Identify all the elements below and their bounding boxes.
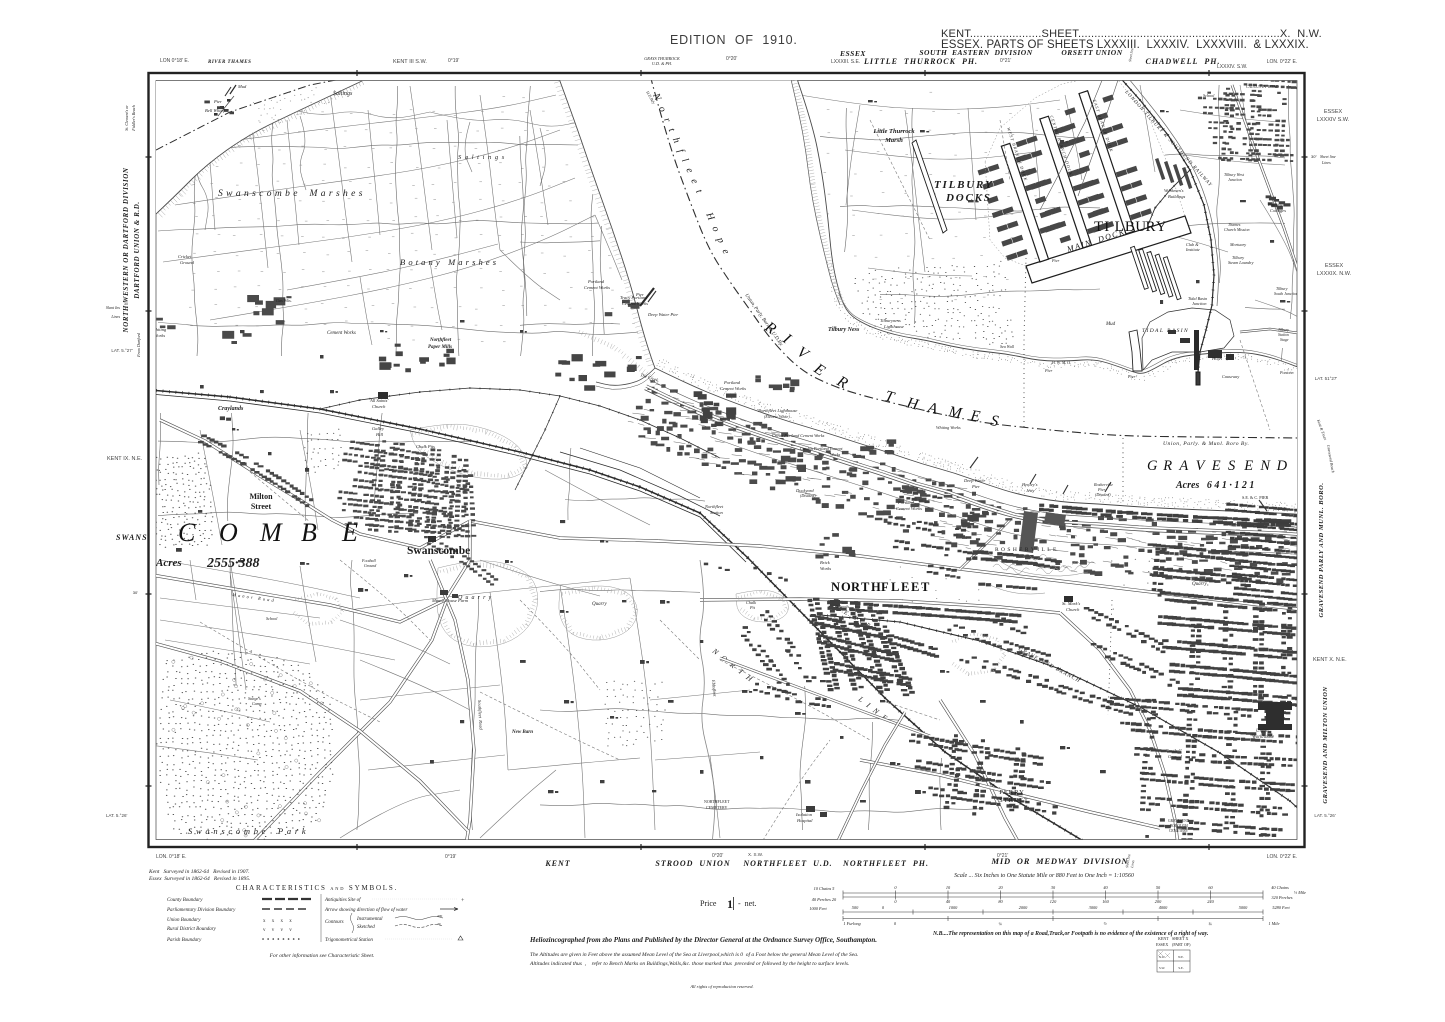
svg-text:4000: 4000 [1159,905,1168,910]
svg-text:Camp: Camp [252,701,262,706]
svg-text:Slant Ins: Slant Ins [106,305,121,310]
svg-text:Pier: Pier [1127,374,1136,379]
svg-text:160: 160 [1102,899,1109,904]
svg-text:(Disused): (Disused) [800,493,816,498]
svg-text:B: B [301,518,317,547]
svg-text:X. S.W.: X. S.W. [748,852,763,857]
svg-text:St. Clement's or: St. Clement's or [124,105,129,131]
svg-text:Isolation: Isolation [795,812,813,817]
svg-text:Arrow showing direction of flo: Arrow showing direction of flow of water [324,908,407,913]
svg-text:Station: Station [1278,333,1289,337]
svg-text:Church: Church [372,404,386,409]
svg-text:Sea Wall: Sea Wall [1000,344,1015,349]
svg-text:Tilbury: Tilbury [1278,328,1289,332]
svg-text:Workhouse: Workhouse [1252,735,1275,740]
svg-text:ESSEX: ESSEX [839,49,866,58]
svg-text:N: N [1259,458,1271,474]
svg-text:From Dartford: From Dartford [136,332,141,358]
svg-text:Tilbury Ness: Tilbury Ness [828,327,860,333]
svg-text:Mud: Mud [237,84,247,89]
svg-text:School: School [266,616,278,621]
svg-text:KENT III S.W.: KENT III S.W. [393,59,427,65]
svg-text:240: 240 [1207,899,1214,904]
svg-text:1000: 1000 [949,905,958,910]
svg-text:Acres 6 4 1 · 1 2 1: Acres 6 4 1 · 1 2 1 [1175,480,1254,491]
svg-text:Pier: Pier [635,292,644,297]
svg-text:1 Mile: 1 Mile [1268,921,1279,926]
svg-text:Ground: Ground [364,563,377,568]
svg-text:Church Mission: Church Mission [1224,227,1250,232]
svg-text:Little Thurrock: Little Thurrock [872,128,915,135]
svg-text:30: 30 [124,302,128,306]
svg-text:SHEET X: SHEET X [1172,936,1188,941]
svg-text:LON. 0°22' E.: LON. 0°22' E. [1267,59,1297,65]
svg-text:0°20': 0°20' [712,853,723,859]
svg-text:TIDAL BASIN: TIDAL BASIN [1142,328,1189,334]
svg-text:South Junction: South Junction [1274,291,1298,296]
svg-text:Buildings: Buildings [1168,194,1185,199]
svg-text:LAT. 5.°26': LAT. 5.°26' [1314,813,1335,818]
svg-text:Northfleet Lighthouse: Northfleet Lighthouse [757,408,797,413]
svg-text:Parish Boundary: Parish Boundary [166,938,202,943]
svg-text:G: G [1147,458,1158,474]
svg-text:LXXXIV. S.W.: LXXXIV. S.W. [1217,64,1247,70]
svg-text:St. Mark's: St. Mark's [1062,601,1080,606]
svg-text:Lines: Lines [110,314,120,319]
svg-text:Quarry: Quarry [592,602,608,607]
svg-text:Workmen's: Workmen's [1164,188,1184,193]
svg-text:All Saints': All Saints' [369,398,389,403]
svg-text:DARTFORD UNION & R.D.: DARTFORD UNION & R.D. [133,201,141,300]
svg-text:Cement Works: Cement Works [622,301,648,306]
svg-text:Marsh: Marsh [884,137,903,144]
svg-text:Altitudes indicated thus ,: Altitudes indicated thus , refer to Benc… [529,960,849,967]
svg-text:E: E [341,518,358,547]
svg-text:Portland: Portland [897,500,915,505]
svg-text:County Boundary: County Boundary [167,898,203,903]
svg-text:CHADWELL PH.: CHADWELL PH. [1145,57,1220,66]
svg-text:Tracy Portland: Tracy Portland [620,295,648,300]
svg-text:Hospital: Hospital [796,818,813,823]
svg-text:Railway: Railway [1267,202,1283,207]
svg-text:R: R [851,580,861,594]
svg-text:NORTHFLEET: NORTHFLEET [704,799,730,804]
svg-text:R O S H E R V I L L E: R O S H E R V I L L E [995,547,1057,553]
svg-text:KENT: KENT [1158,936,1169,941]
svg-text:Brick: Brick [820,560,831,565]
svg-text:Crown Portland Cement Works: Crown Portland Cement Works [772,433,825,438]
svg-text:30'': 30'' [1311,154,1317,159]
svg-text:Northfleet: Northfleet [429,338,452,343]
svg-text:Pier: Pier [1044,368,1053,373]
svg-text:CHARACTERISTICS AND SYMBOLS.: CHARACTERISTICS AND SYMBOLS. [236,884,398,892]
svg-text:Bell Wharf: Bell Wharf [205,108,225,113]
svg-text:v v v v: v v v v [263,928,292,933]
svg-text:Ground: Ground [1168,754,1183,759]
svg-text:Cement Works: Cement Works [327,331,356,336]
svg-text:Mortuary: Mortuary [1229,242,1246,247]
svg-text:2000: 2000 [1019,905,1028,910]
svg-text:T: T [921,580,930,594]
svg-text:O: O [841,580,851,594]
svg-text:SWANS: SWANS [116,533,148,542]
svg-text:NORTHFLEET PH.: NORTHFLEET PH. [842,859,929,868]
svg-text:Jetty: Jetty [1026,488,1035,493]
svg-text:0°21': 0°21' [1000,58,1011,64]
svg-text:Scale ... Six Inches to One St: Scale ... Six Inches to One Statute Mile… [954,873,1134,879]
svg-text:Instrumental: Instrumental [356,917,383,922]
svg-text:Pontoon: Pontoon [1279,370,1294,375]
svg-text:Parliamentary Division Boundar: Parliamentary Division Boundary [166,908,236,913]
svg-text:Cottages: Cottages [1270,208,1286,213]
svg-text:Whiting Works: Whiting Works [936,425,961,430]
svg-text:Works: Works [830,452,841,457]
svg-text:Paper Mills: Paper Mills [428,345,452,350]
svg-text:R: R [1146,219,1156,235]
svg-text:H. W. M. O.: H. W. M. O. [1051,360,1071,365]
svg-text:5280 Feet: 5280 Feet [1272,905,1290,910]
svg-text:2555·388: 2555·388 [206,556,260,571]
svg-text:Contours: Contours [325,920,344,925]
svg-text:Sheet line: Sheet line [1320,154,1336,159]
svg-text:O: O [219,518,238,547]
svg-text:½ Mile: ½ Mile [1294,890,1306,895]
svg-text:GRAVESEND PARLY AND MUNL. BORO: GRAVESEND PARLY AND MUNL. BORO. [1318,483,1325,618]
svg-text:NORTHFLEET U.D.: NORTHFLEET U.D. [742,859,832,868]
svg-text:1: 1 [727,897,733,911]
svg-text:Steam Laundry: Steam Laundry [1228,260,1254,265]
svg-text:GRAVESEND AND MILTON UNION: GRAVESEND AND MILTON UNION [1322,686,1329,803]
svg-text:Milton: Milton [249,492,273,501]
svg-text:Rural District Boundary: Rural District Boundary [166,927,217,932]
svg-text:H: H [871,580,881,594]
svg-text:Price: Price [700,899,717,908]
svg-text:Causeway: Causeway [1222,374,1239,379]
svg-text:Henley's: Henley's [1021,482,1038,487]
svg-text:Chalk Pits: Chalk Pits [416,444,435,449]
svg-text:Union, Parly. & Munl. Boro By.: Union, Parly. & Munl. Boro By. [1163,441,1249,447]
svg-text:Stage: Stage [1280,338,1289,342]
svg-text:E: E [911,580,919,594]
svg-text:(PART OF): (PART OF) [1172,942,1191,947]
svg-text:GRAVESEND: GRAVESEND [1168,819,1190,823]
svg-text:400: 400 [437,914,443,918]
svg-text:M: M [259,518,283,547]
svg-text:S a l t i n g s: S a l t i n g s [458,154,505,161]
svg-text:40 Perches 20: 40 Perches 20 [812,897,837,902]
svg-text:Cement Works: Cement Works [720,386,746,391]
svg-text:Northfleet: Northfleet [704,504,724,509]
svg-text:CEMETERY: CEMETERY [706,805,727,810]
svg-text:Quarry: Quarry [1192,582,1208,587]
svg-text:Lines: Lines [1321,160,1331,165]
svg-text:C: C [178,518,196,547]
svg-text:5000: 5000 [1239,905,1248,910]
svg-text:120: 120 [1050,899,1057,904]
svg-text:Ground: Ground [180,260,195,265]
svg-text:MID OR MEDWAY DIVISION: MID OR MEDWAY DIVISION [991,856,1129,866]
svg-text:Saltings: Saltings [333,91,353,97]
svg-text:ORSETT UNION: ORSETT UNION [1061,48,1122,57]
svg-text:London Portland Cement: London Portland Cement [799,446,843,451]
svg-text:Acres: Acres [155,557,182,569]
svg-text:0°19': 0°19' [445,854,456,860]
svg-text:School: School [1203,93,1215,98]
svg-text:Hotel: Hotel [1211,356,1223,361]
svg-text:3000: 3000 [1089,905,1098,910]
svg-text:CEMETERY: CEMETERY [1169,829,1189,833]
svg-text:For other information see Char: For other information see Characteristic… [269,952,375,959]
svg-text:Y: Y [1156,219,1167,235]
svg-text:10 Chains 5: 10 Chains 5 [814,886,836,891]
svg-text:x x x x: x x x x [263,919,292,924]
svg-text:Essex Surveyed in 1862-64 R: Essex Surveyed in 1862-64 Revised in 189… [148,875,250,882]
svg-text:Antiquities Site of: Antiquities Site of [324,898,361,903]
svg-text:Cricket: Cricket [178,254,192,259]
svg-text:ESSEX: ESSEX [1324,109,1343,115]
svg-text:BOROUGH: BOROUGH [1170,824,1188,828]
svg-text:LON. 0°22' E.: LON. 0°22' E. [1267,854,1297,860]
svg-text:N.W.: N.W. [1159,955,1166,959]
svg-text:The Altitudes are given in Fee: The Altitudes are given in Feet above th… [530,951,858,958]
svg-text:30': 30' [133,590,138,595]
svg-text:E: E [1243,458,1253,474]
svg-text:F: F [881,580,889,594]
svg-text:0°19': 0°19' [448,58,459,64]
svg-text:40: 40 [437,922,441,926]
svg-text:Craylands: Craylands [218,406,244,412]
svg-text:Deep Water Pier: Deep Water Pier [647,312,678,317]
svg-text:S w a n s c o m b e M a r s: S w a n s c o m b e M a r s h e s [218,189,363,199]
svg-text:Pier: Pier [1051,258,1060,263]
svg-text:A: A [1178,458,1188,474]
svg-text:Junction: Junction [1228,177,1242,182]
svg-text:Football: Football [1165,748,1182,753]
svg-text:RIVER THAMES: RIVER THAMES [208,60,251,65]
svg-text:B: B [1125,219,1135,235]
svg-text:Swanscombe: Swanscombe [407,545,470,557]
svg-text:EDITION OF 1910.: EDITION OF 1910. [670,33,798,47]
svg-text:All rights of reproduction res: All rights of reproduction reserved. [689,984,753,989]
svg-text:500: 500 [852,905,859,910]
svg-text:40 Chains: 40 Chains [1271,885,1289,890]
svg-text:Mud: Mud [1105,322,1116,327]
svg-text:E: E [901,580,909,594]
svg-text:(Electric White): (Electric White) [764,414,790,419]
svg-text:S: S [1228,458,1236,474]
svg-text:0°20': 0°20' [726,56,737,62]
svg-text:KENT X. N.E.: KENT X. N.E. [1313,657,1347,663]
svg-text:U.D. & PH.: U.D. & PH. [652,61,672,66]
svg-text:- net.: - net. [738,899,756,908]
svg-text:S.E. & C. PIER: S.E. & C. PIER [1242,495,1268,500]
svg-text:Junction: Junction [1192,301,1206,306]
svg-text:T: T [1094,219,1103,235]
svg-text:SOUTH EASTERN DIVISION: SOUTH EASTERN DIVISION [919,48,1032,57]
svg-text:320 Perches: 320 Perches [1271,895,1293,900]
svg-text:LXXXIII. S.E.: LXXXIII. S.E. [831,59,860,65]
svg-text:Portland: Portland [723,380,741,385]
svg-text:Manor House Farm: Manor House Farm [431,598,469,603]
svg-text:Station: Station [710,510,724,515]
svg-text:LON. 0°18' E.: LON. 0°18' E. [156,854,186,860]
svg-text:Lighthouse: Lighthouse [883,324,904,329]
svg-text:S.E.: S.E. [1178,966,1184,970]
svg-text:CALCUTTA ROAD: CALCUTTA ROAD [1246,85,1279,89]
svg-text:Heliozincographed from zbo Pla: Heliozincographed from zbo Plans and Pub… [529,936,877,944]
svg-text:Pier: Pier [213,99,222,104]
svg-text:R: R [1162,458,1172,474]
svg-text:STREET: STREET [999,797,1029,804]
svg-text:Kent Surveyed in 1862-64 R: Kent Surveyed in 1862-64 Revised in 1907… [148,868,250,875]
svg-text:D: D [1276,458,1288,474]
svg-text:LXXXIX. N.W.: LXXXIX. N.W. [1317,271,1352,277]
svg-text:Union Boundary: Union Boundary [167,918,201,923]
svg-text:LAT. 51°27': LAT. 51°27' [1315,376,1338,381]
svg-text:Sketched: Sketched [357,925,375,930]
svg-text:200: 200 [1155,899,1162,904]
svg-text:NORTH WESTERN OR DARTFORD DIVI: NORTH WESTERN OR DARTFORD DIVISION [122,167,130,333]
svg-text:Works: Works [820,566,831,571]
svg-text:Hill: Hill [375,432,384,437]
svg-text:1 Furlong: 1 Furlong [843,921,861,926]
svg-text:Schools: Schools [836,604,849,609]
svg-text:1000 Feet: 1000 Feet [809,906,827,911]
svg-text:LAT. 5.°26': LAT. 5.°26' [106,813,127,818]
svg-text:Fiddler's Reach: Fiddler's Reach [131,105,136,131]
svg-text:Institute: Institute [1185,247,1200,252]
svg-text:B o t a n y M a r s h e s: B o t a n y M a r s h e s [400,257,497,267]
svg-text:PERRY: PERRY [999,789,1025,796]
svg-text:N: N [831,580,840,594]
svg-text:S w a n s c o m b e P a r k: S w a n s c o m b e P a r k [188,826,306,836]
svg-text:Pier: Pier [971,484,980,489]
svg-text:S.W.: S.W. [1159,966,1165,970]
svg-text:Gas Wks.: Gas Wks. [276,298,292,303]
svg-text:KENT: KENT [544,859,570,868]
svg-text:LON 0°18' E.: LON 0°18' E. [160,58,189,64]
svg-text:N.E.: N.E. [1178,955,1184,959]
svg-text:ESSEX: ESSEX [1156,942,1168,947]
svg-text:E: E [1211,458,1221,474]
svg-text:Cement Works: Cement Works [584,285,610,290]
svg-text:Cement Works: Cement Works [896,506,922,511]
svg-text:Pit: Pit [749,605,756,610]
svg-text:L: L [891,580,899,594]
svg-text:Deep Water: Deep Water [963,478,985,483]
svg-text:KENT IX. N.E.: KENT IX. N.E. [107,456,143,462]
svg-text:Galley: Galley [372,426,384,431]
svg-text:Street: Street [251,502,272,511]
svg-text:LAT. 5.°27': LAT. 5.°27' [111,348,132,353]
svg-text:Trigonometrical Station: Trigonometrical Station [325,938,373,943]
svg-text:Church: Church [1066,607,1080,612]
svg-text:(Disused): (Disused) [1095,492,1111,497]
svg-text:0°21': 0°21' [997,853,1008,859]
svg-text:LXXXIV S.W.: LXXXIV S.W. [1317,117,1350,123]
svg-text:TILBURY: TILBURY [934,179,993,191]
svg-text:T: T [861,580,870,594]
svg-text:ESSEX: ESSEX [1325,263,1344,269]
svg-text:New Barn: New Barn [511,730,533,735]
svg-text:LITTLE THURROCK PH.: LITTLE THURROCK PH. [863,57,978,66]
svg-text:Union: Union [1256,729,1269,734]
svg-text:STROOD UNION: STROOD UNION [655,859,730,868]
svg-text:Portland: Portland [587,279,605,284]
